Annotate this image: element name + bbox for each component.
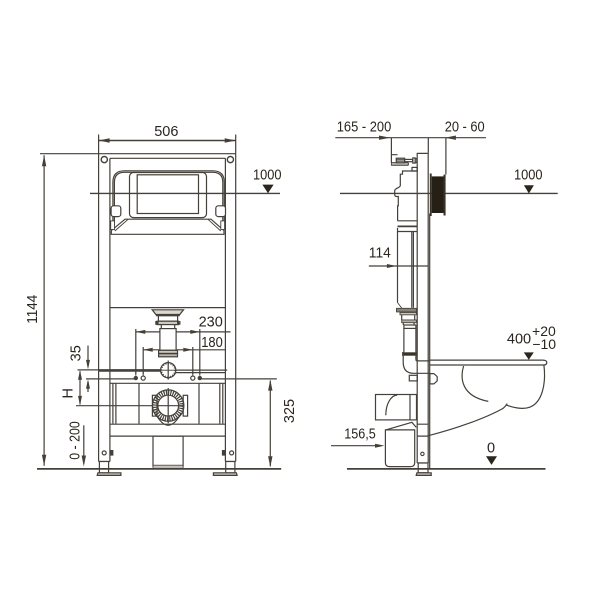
- svg-text:165 - 200: 165 - 200: [337, 120, 392, 136]
- svg-text:H: H: [60, 388, 76, 398]
- svg-text:20 - 60: 20 - 60: [445, 120, 485, 136]
- svg-text:180: 180: [201, 335, 223, 351]
- svg-text:0 - 200: 0 - 200: [68, 421, 84, 460]
- svg-text:−10: −10: [532, 336, 556, 352]
- svg-text:400: 400: [507, 331, 531, 347]
- svg-text:35: 35: [69, 345, 85, 361]
- svg-text:114: 114: [369, 246, 391, 262]
- svg-text:1000: 1000: [253, 168, 282, 184]
- svg-text:1000: 1000: [514, 167, 543, 183]
- svg-text:1144: 1144: [25, 295, 41, 324]
- svg-text:0: 0: [487, 441, 495, 457]
- svg-text:156,5: 156,5: [344, 427, 376, 443]
- svg-text:506: 506: [154, 124, 178, 140]
- svg-text:230: 230: [199, 315, 223, 331]
- svg-text:325: 325: [282, 399, 298, 423]
